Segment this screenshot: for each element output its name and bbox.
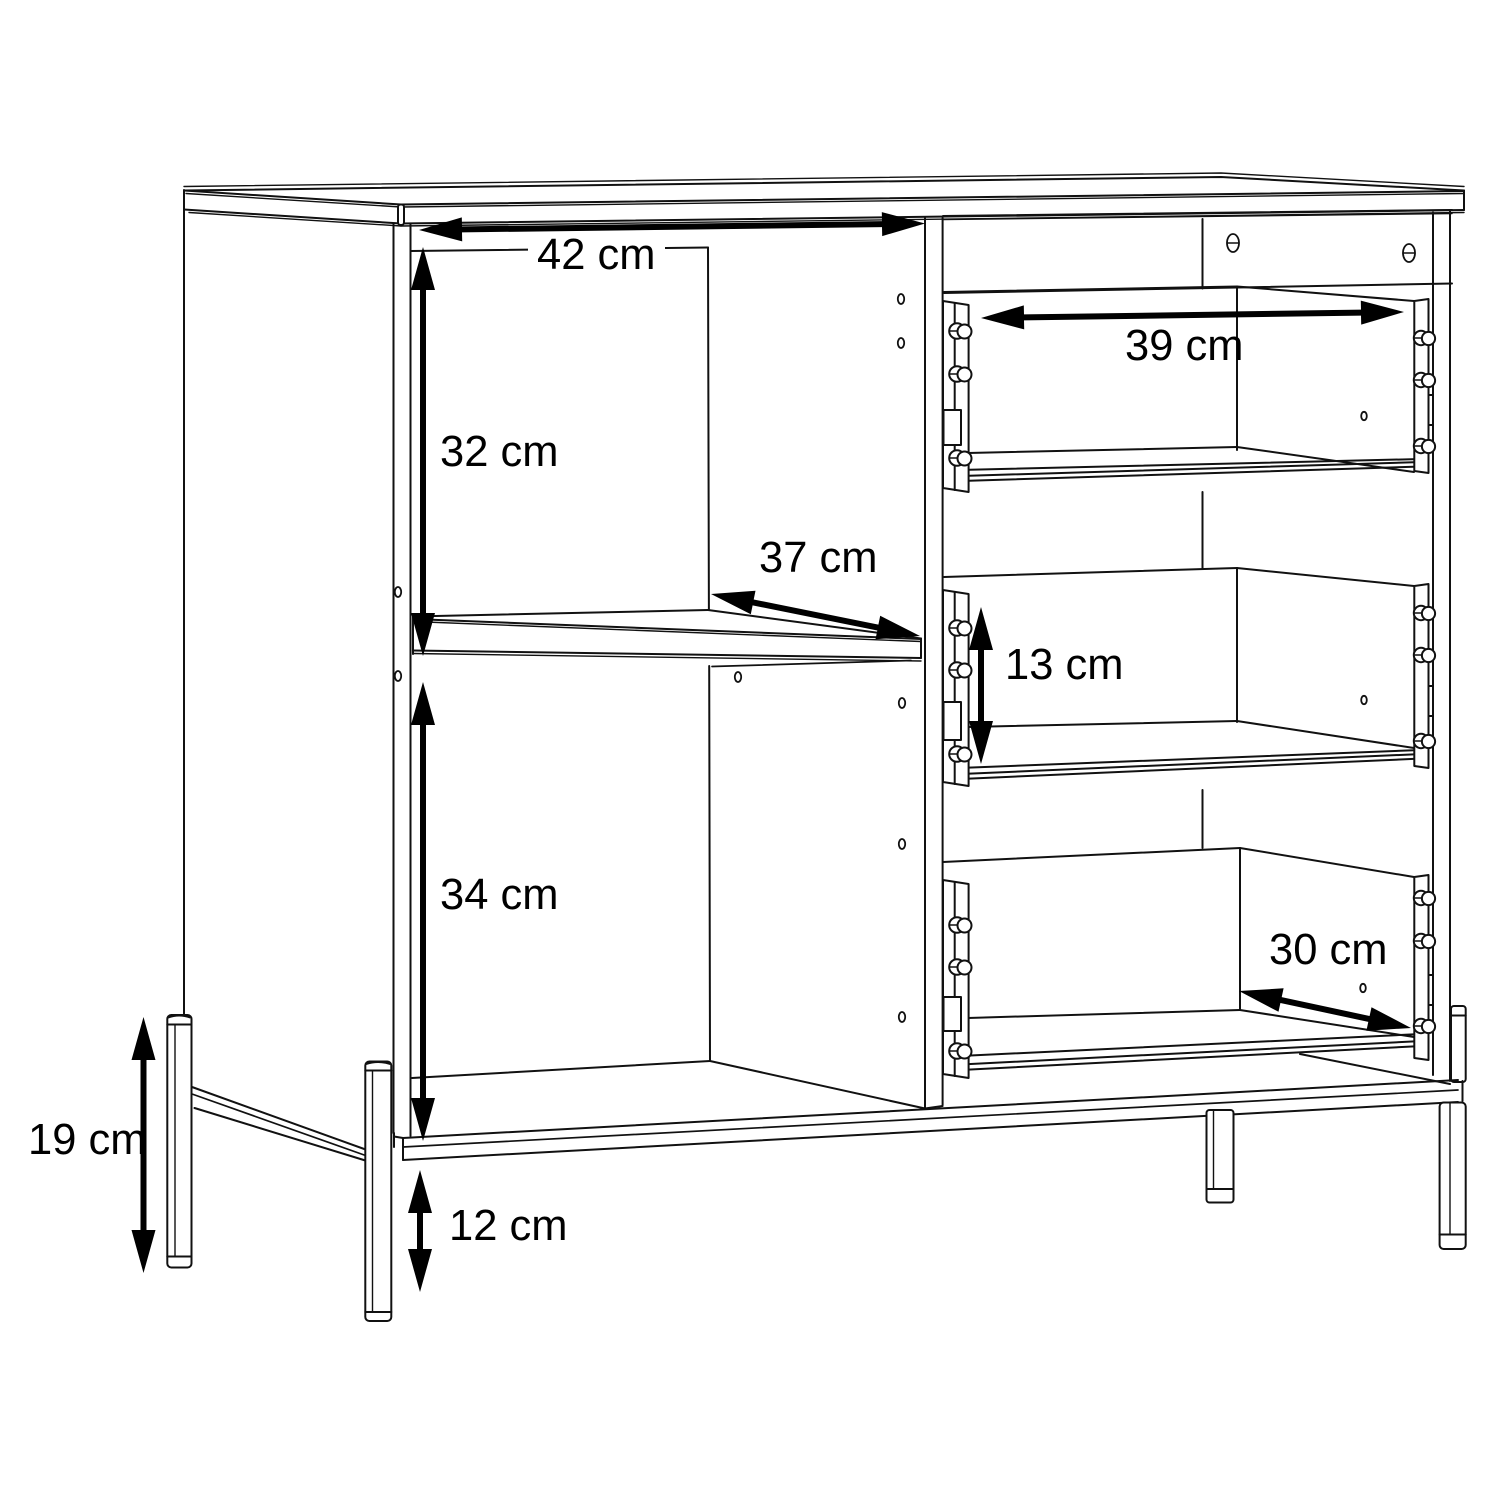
svg-text:32 cm: 32 cm bbox=[440, 428, 558, 476]
svg-text:34 cm: 34 cm bbox=[440, 871, 558, 919]
svg-text:12 cm: 12 cm bbox=[449, 1202, 567, 1250]
svg-text:13 cm: 13 cm bbox=[1005, 641, 1123, 689]
svg-text:37 cm: 37 cm bbox=[759, 534, 877, 582]
svg-text:19 cm: 19 cm bbox=[28, 1116, 146, 1164]
svg-text:30 cm: 30 cm bbox=[1269, 926, 1387, 974]
svg-text:39 cm: 39 cm bbox=[1125, 322, 1243, 370]
svg-text:42 cm: 42 cm bbox=[537, 231, 655, 279]
